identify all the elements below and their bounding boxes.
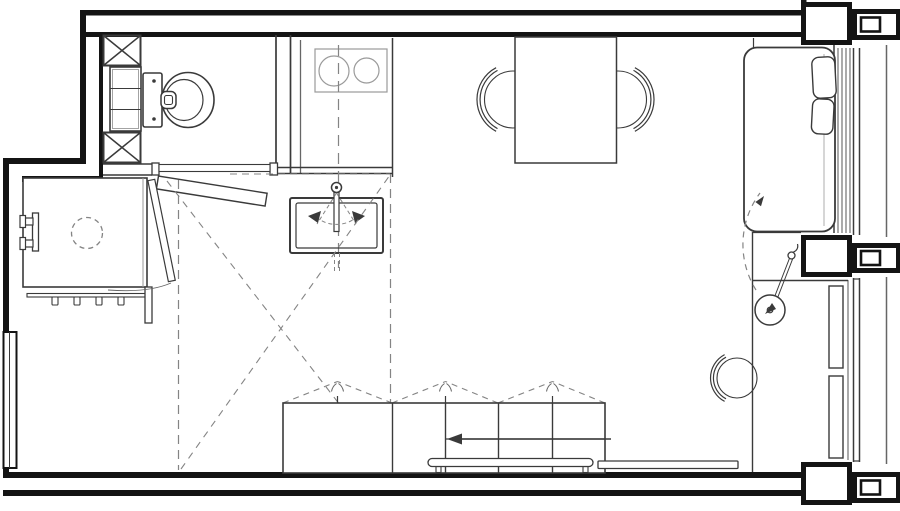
bathroom-door	[152, 163, 278, 206]
shaft-box-upper	[104, 36, 141, 66]
pillow	[811, 56, 836, 98]
burner	[354, 58, 379, 83]
dining-table	[515, 37, 617, 163]
door-leaf	[148, 179, 175, 281]
toilet-symbol	[143, 73, 214, 128]
swivel-arrow-left	[308, 211, 321, 223]
faucet-symbol	[308, 183, 365, 232]
pillow	[811, 98, 834, 134]
swing-arm-lamp	[755, 244, 798, 325]
door-leaf	[156, 176, 267, 206]
bathroom-right-wall	[276, 35, 301, 173]
hook-rail	[27, 294, 147, 298]
flap-door-dashes	[283, 382, 605, 404]
hook	[96, 297, 102, 305]
facade-pier-middle	[804, 238, 899, 275]
facade-pier-top	[804, 5, 899, 43]
left-window	[4, 332, 17, 468]
kitchen-counter	[277, 38, 393, 271]
hook	[74, 297, 80, 305]
cooktop-symbol	[315, 49, 387, 92]
shaft-box-lower	[104, 133, 141, 163]
wardrobe-row	[283, 382, 738, 474]
armchair	[711, 355, 757, 402]
kitchen-nook	[20, 178, 175, 323]
hook	[52, 297, 58, 305]
bathroom-floor-wall	[103, 164, 152, 175]
kitchen-block	[23, 178, 147, 287]
shelf-column	[110, 67, 141, 131]
sink-symbol	[290, 183, 383, 272]
radiator-panels	[829, 286, 843, 458]
side-panel	[145, 287, 152, 323]
floor-plan-svg	[0, 0, 900, 511]
hook	[118, 297, 124, 305]
burner	[319, 56, 349, 86]
facade-pier-bottom	[804, 465, 899, 503]
dining-group	[477, 37, 654, 163]
floor-plan-canvas	[0, 0, 900, 511]
